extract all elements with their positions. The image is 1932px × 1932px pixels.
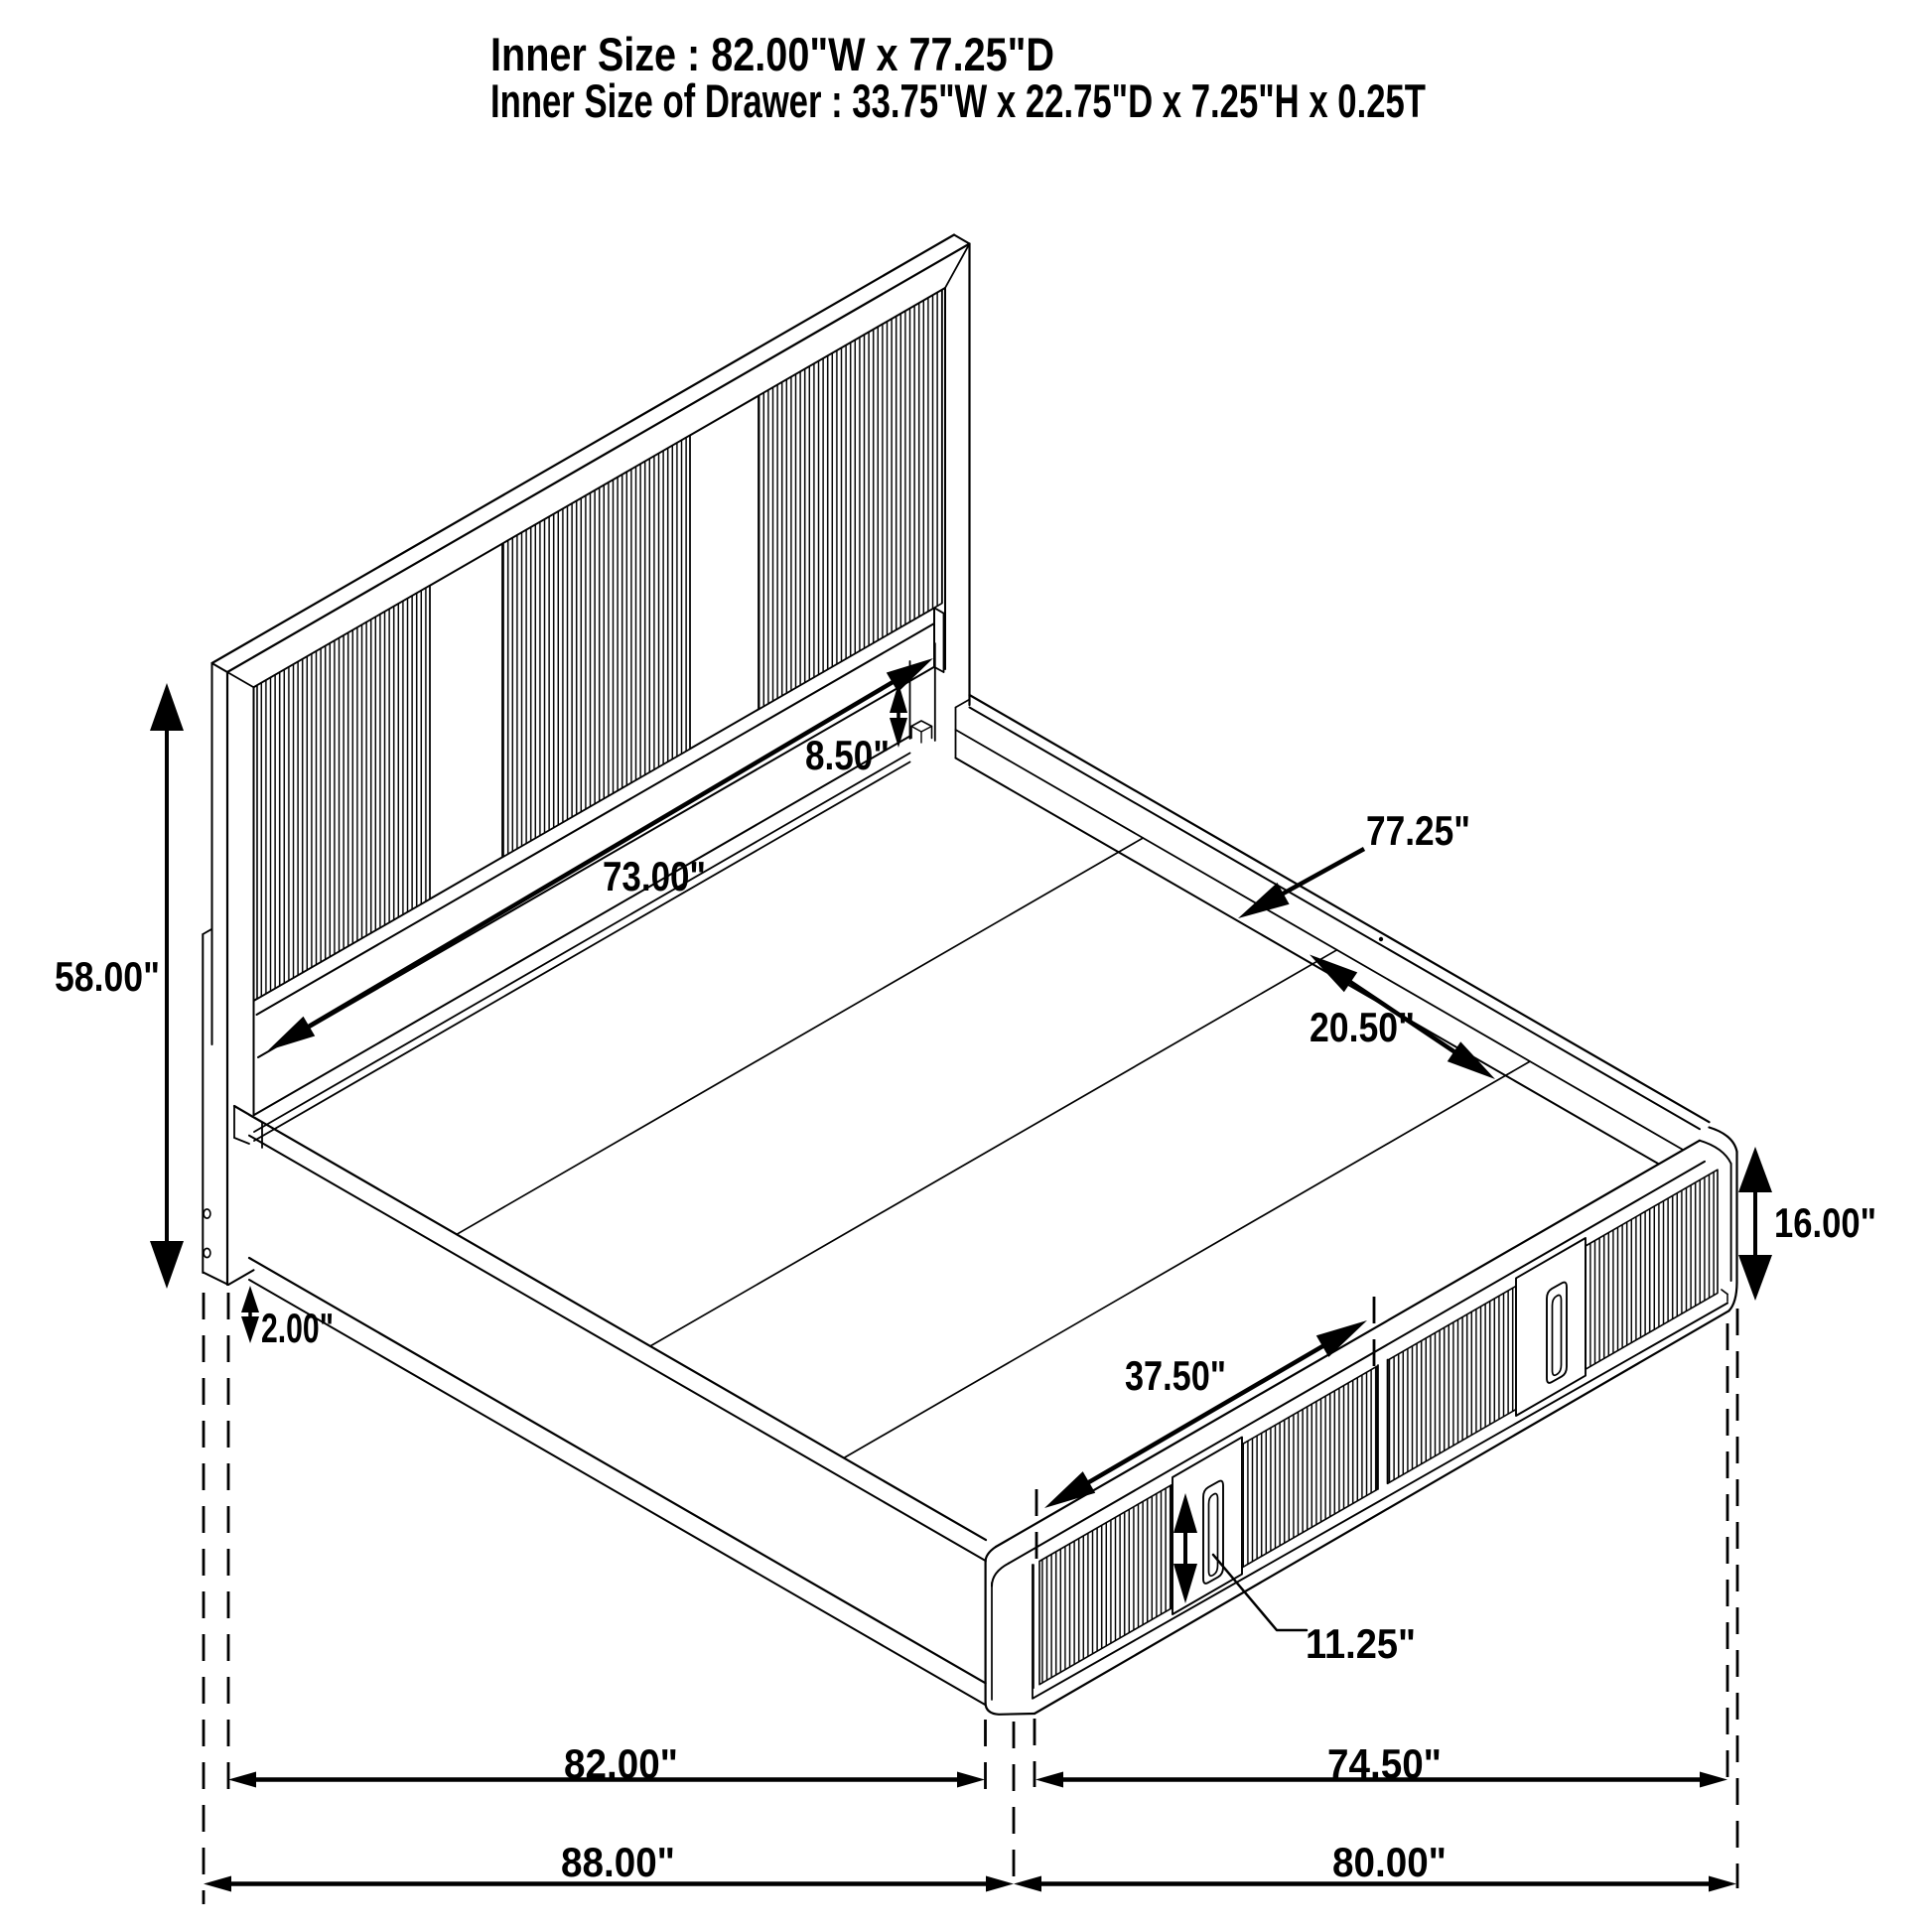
svg-text:20.50": 20.50" — [1310, 1004, 1415, 1050]
svg-text:82.00": 82.00" — [564, 1740, 678, 1787]
svg-text:11.25": 11.25" — [1306, 1620, 1416, 1667]
svg-text:Inner Size of Drawer : 33.75"W: Inner Size of Drawer : 33.75"W x 22.75"D… — [490, 74, 1426, 127]
svg-text:37.50": 37.50" — [1125, 1352, 1226, 1399]
svg-text:80.00": 80.00" — [1332, 1839, 1447, 1885]
svg-text:58.00": 58.00" — [55, 953, 160, 1000]
svg-text:8.50": 8.50" — [805, 732, 890, 778]
svg-text:2.00": 2.00" — [261, 1305, 334, 1351]
svg-text:77.25": 77.25" — [1366, 807, 1470, 854]
svg-text:88.00": 88.00" — [561, 1839, 675, 1885]
svg-text:16.00": 16.00" — [1774, 1199, 1876, 1246]
svg-text:74.50": 74.50" — [1327, 1740, 1442, 1787]
svg-text:73.00": 73.00" — [603, 853, 706, 899]
svg-text:Inner Size : 82.00"W x 77.25"D: Inner Size : 82.00"W x 77.25"D — [490, 28, 1054, 80]
